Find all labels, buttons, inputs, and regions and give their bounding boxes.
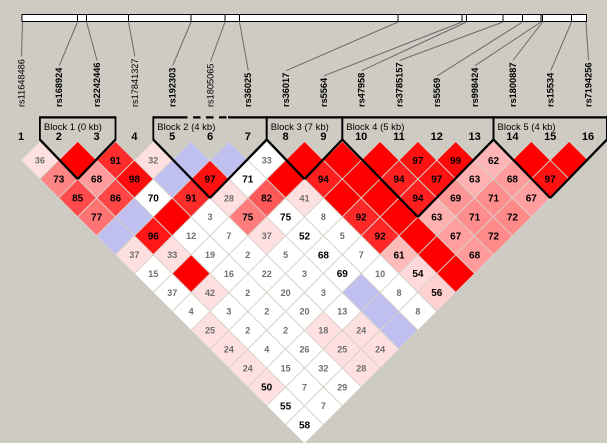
svg-text:67: 67 <box>450 231 462 242</box>
svg-text:91: 91 <box>186 194 198 205</box>
svg-text:92: 92 <box>375 231 387 242</box>
svg-text:Block 4 (5 kb): Block 4 (5 kb) <box>346 122 404 133</box>
svg-text:91: 91 <box>110 156 122 167</box>
svg-text:75: 75 <box>242 213 254 224</box>
svg-text:20: 20 <box>299 307 309 317</box>
svg-text:68: 68 <box>469 250 481 261</box>
svg-text:69: 69 <box>337 269 349 280</box>
svg-text:85: 85 <box>72 194 84 205</box>
svg-text:75: 75 <box>280 213 292 224</box>
svg-text:24: 24 <box>375 345 385 355</box>
svg-text:63: 63 <box>469 175 481 186</box>
svg-text:72: 72 <box>488 231 500 242</box>
svg-text:37: 37 <box>129 250 139 260</box>
svg-text:42: 42 <box>205 288 215 298</box>
svg-text:8: 8 <box>415 307 420 317</box>
svg-text:2: 2 <box>264 307 269 317</box>
svg-text:2: 2 <box>245 250 250 260</box>
svg-text:8: 8 <box>396 288 401 298</box>
svg-text:rs47958: rs47958 <box>357 73 367 107</box>
svg-text:36: 36 <box>35 156 45 166</box>
svg-text:8: 8 <box>321 212 326 222</box>
svg-text:32: 32 <box>148 156 158 166</box>
svg-text:98: 98 <box>129 175 141 186</box>
svg-text:61: 61 <box>393 250 405 261</box>
svg-text:2: 2 <box>245 326 250 336</box>
svg-text:26: 26 <box>299 345 309 355</box>
svg-text:rs5569: rs5569 <box>432 78 442 107</box>
svg-text:15: 15 <box>148 269 158 279</box>
svg-text:13: 13 <box>468 131 480 143</box>
svg-text:52: 52 <box>299 231 311 242</box>
svg-text:63: 63 <box>431 213 443 224</box>
svg-text:94: 94 <box>393 175 405 186</box>
svg-text:68: 68 <box>318 250 330 261</box>
svg-text:5: 5 <box>340 231 345 241</box>
svg-text:24: 24 <box>224 345 234 355</box>
svg-text:rs17841327: rs17841327 <box>130 58 140 107</box>
svg-text:92: 92 <box>356 213 368 224</box>
svg-text:77: 77 <box>91 213 103 224</box>
svg-text:Block 5 (4 kb): Block 5 (4 kb) <box>498 122 556 133</box>
svg-text:71: 71 <box>488 194 500 205</box>
svg-text:94: 94 <box>412 194 424 205</box>
svg-text:55: 55 <box>280 402 292 413</box>
svg-text:16: 16 <box>224 269 234 279</box>
svg-text:3: 3 <box>321 288 326 298</box>
svg-text:4: 4 <box>131 131 138 143</box>
svg-text:25: 25 <box>337 345 347 355</box>
svg-text:12: 12 <box>186 231 196 241</box>
svg-text:12: 12 <box>431 131 443 143</box>
svg-text:3: 3 <box>226 307 231 317</box>
svg-text:Block 2 (4 kb): Block 2 (4 kb) <box>157 122 215 133</box>
svg-text:5: 5 <box>283 250 288 260</box>
svg-text:37: 37 <box>167 288 177 298</box>
svg-text:rs5564: rs5564 <box>319 77 329 107</box>
svg-text:15: 15 <box>281 363 291 373</box>
svg-text:97: 97 <box>204 175 216 186</box>
svg-text:7: 7 <box>245 131 251 143</box>
svg-text:3: 3 <box>207 212 212 222</box>
svg-text:rs1800887: rs1800887 <box>508 63 518 107</box>
svg-text:37: 37 <box>262 231 272 241</box>
svg-text:97: 97 <box>431 175 443 186</box>
svg-text:rs11648486: rs11648486 <box>16 59 26 107</box>
svg-text:7: 7 <box>302 382 307 392</box>
svg-text:73: 73 <box>53 175 65 186</box>
svg-text:96: 96 <box>148 231 160 242</box>
svg-text:2: 2 <box>245 288 250 298</box>
svg-text:24: 24 <box>243 363 253 373</box>
svg-text:71: 71 <box>242 175 254 186</box>
svg-text:28: 28 <box>356 363 366 373</box>
svg-text:68: 68 <box>507 175 519 186</box>
svg-text:7: 7 <box>359 250 364 260</box>
svg-text:rs168924: rs168924 <box>54 67 64 107</box>
svg-text:7: 7 <box>321 401 326 411</box>
svg-text:24: 24 <box>356 326 366 336</box>
svg-text:4: 4 <box>264 345 269 355</box>
svg-text:67: 67 <box>526 194 538 205</box>
svg-text:62: 62 <box>488 156 500 167</box>
svg-text:33: 33 <box>167 250 177 260</box>
svg-text:3: 3 <box>302 269 307 279</box>
svg-text:1: 1 <box>18 131 24 143</box>
svg-text:rs2242446: rs2242446 <box>92 63 102 107</box>
svg-text:18: 18 <box>318 326 328 336</box>
svg-text:86: 86 <box>110 194 122 205</box>
svg-text:rs7194256: rs7194256 <box>583 63 593 107</box>
svg-text:16: 16 <box>582 131 594 143</box>
svg-text:50: 50 <box>261 383 273 394</box>
svg-text:58: 58 <box>299 420 311 431</box>
svg-text:29: 29 <box>337 382 347 392</box>
svg-text:25: 25 <box>205 326 215 336</box>
svg-text:Block 3 (7 kb): Block 3 (7 kb) <box>271 122 329 133</box>
svg-text:41: 41 <box>299 193 309 203</box>
svg-text:rs998424: rs998424 <box>470 67 480 107</box>
svg-text:19: 19 <box>205 250 215 260</box>
svg-text:28: 28 <box>224 193 234 203</box>
svg-text:rs15534: rs15534 <box>546 72 556 107</box>
svg-text:rs1805065: rs1805065 <box>205 64 215 107</box>
svg-text:2: 2 <box>283 326 288 336</box>
svg-text:68: 68 <box>91 175 103 186</box>
svg-text:97: 97 <box>412 156 424 167</box>
svg-text:rs3785157: rs3785157 <box>394 63 404 107</box>
svg-text:33: 33 <box>262 156 272 166</box>
svg-text:32: 32 <box>318 363 328 373</box>
svg-text:7: 7 <box>226 231 231 241</box>
svg-text:Block 1 (0 kb): Block 1 (0 kb) <box>44 122 102 133</box>
svg-text:70: 70 <box>148 194 160 205</box>
svg-text:22: 22 <box>262 269 272 279</box>
svg-text:71: 71 <box>469 213 481 224</box>
svg-text:94: 94 <box>318 175 330 186</box>
svg-text:20: 20 <box>281 288 291 298</box>
svg-text:rs192303: rs192303 <box>168 68 178 107</box>
svg-text:rs36017: rs36017 <box>281 73 291 107</box>
svg-text:4: 4 <box>189 307 194 317</box>
svg-text:97: 97 <box>545 175 557 186</box>
svg-text:10: 10 <box>375 269 385 279</box>
svg-text:82: 82 <box>261 194 273 205</box>
svg-text:69: 69 <box>450 194 462 205</box>
svg-text:99: 99 <box>450 156 462 167</box>
svg-text:56: 56 <box>431 288 443 299</box>
svg-text:rs36025: rs36025 <box>243 73 253 107</box>
svg-text:13: 13 <box>337 307 347 317</box>
svg-text:54: 54 <box>412 269 424 280</box>
svg-text:72: 72 <box>507 213 519 224</box>
